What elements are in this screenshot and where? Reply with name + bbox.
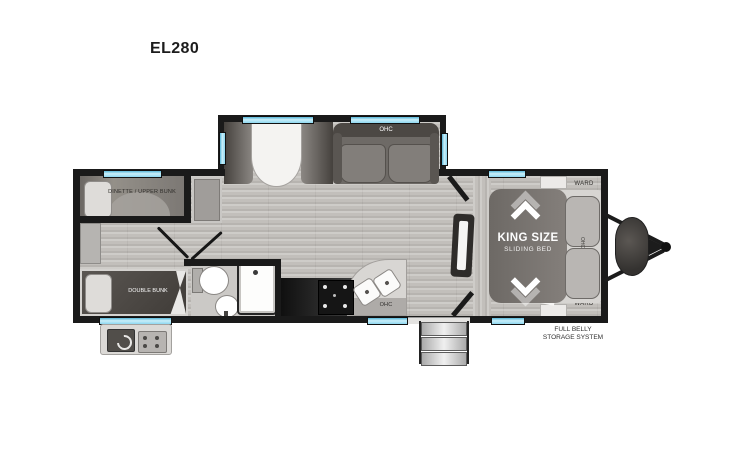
propane-tank (615, 217, 649, 276)
sofa-armrest-right (430, 133, 439, 184)
step (421, 352, 467, 366)
wall (275, 259, 281, 318)
stove-cooktop (318, 280, 354, 315)
tv-screen (457, 221, 469, 270)
sofa: OHC (333, 123, 439, 184)
refrigerator (192, 177, 222, 223)
wall (601, 169, 608, 323)
window (488, 170, 526, 178)
storage-note-line1: FULL BELLY (528, 326, 618, 334)
bed-title: KING SIZE (489, 233, 567, 245)
model-title: EL280 (150, 40, 199, 58)
floorplan-canvas: EL280 DINETTE / UPPER BUNK DOUBLE BUNK O… (0, 0, 731, 469)
ward-top-label: WARD (566, 181, 602, 187)
wall (184, 259, 281, 266)
entry-steps (419, 321, 469, 364)
wall (73, 216, 191, 223)
step (421, 322, 467, 336)
window (367, 317, 408, 325)
dinette-upper-bunk: DINETTE / UPPER BUNK (80, 176, 184, 220)
dinette-upper-bunk-label: DINETTE / UPPER BUNK (102, 190, 182, 196)
bed-subtitle: SLIDING BED (489, 247, 567, 254)
dinette-bench-right (301, 122, 333, 184)
front-cabinet-top (540, 176, 567, 189)
double-bunk-label: DOUBLE BUNK (118, 289, 178, 295)
double-bunk: DOUBLE BUNK (80, 269, 188, 316)
window (350, 116, 420, 124)
dinette-table (251, 121, 302, 187)
bed-ohc-label: OHC (579, 237, 584, 248)
outdoor-griddle (107, 329, 135, 352)
window (242, 116, 314, 124)
sofa-ohc-label: OHC (333, 127, 439, 133)
kitchen-ohc-label: OHC (372, 303, 400, 309)
bunk-pillow (84, 181, 112, 218)
storage-note: FULL BELLY STORAGE SYSTEM (528, 326, 618, 343)
hallway-cabinet (80, 223, 101, 264)
sofa-cushion-left (340, 144, 386, 183)
tv-entertainment-unit (450, 213, 474, 277)
toilet-bowl (199, 266, 229, 295)
dinette-seat-cushion (108, 192, 170, 218)
window (441, 133, 448, 166)
window (491, 317, 525, 325)
outdoor-kitchen (100, 324, 172, 355)
window (103, 170, 162, 178)
hitch-ball-icon (661, 242, 671, 252)
window (219, 132, 226, 165)
storage-note-line2: STORAGE SYSTEM (528, 334, 618, 342)
double-bunk-pillow (85, 274, 112, 313)
outdoor-stove (138, 331, 167, 353)
bed-pillow-bottom (565, 248, 600, 299)
shower-drain (253, 270, 258, 275)
step (421, 337, 467, 351)
sofa-cushion-right (388, 144, 434, 183)
king-sliding-bed: KING SIZE SLIDING BED (489, 189, 567, 303)
wall (184, 169, 191, 223)
griddle-icon (114, 332, 135, 353)
wall (73, 169, 80, 323)
dinette-bench-left (224, 122, 253, 184)
shower (237, 262, 277, 315)
sofa-armrest-left (333, 133, 342, 184)
